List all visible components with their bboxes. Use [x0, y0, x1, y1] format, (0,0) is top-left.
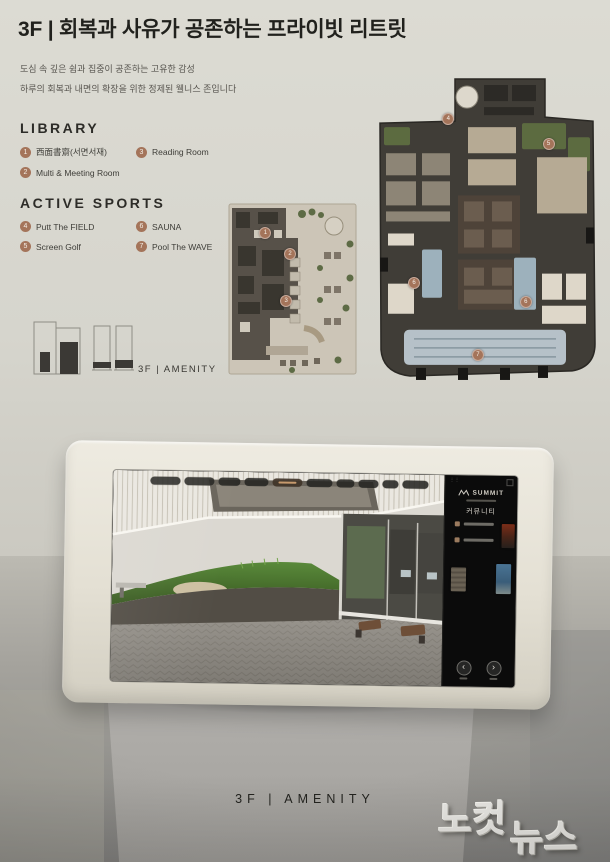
legend-label: Putt The FIELD [36, 222, 94, 232]
legend-item: 1西面書齋(서면서재) [20, 146, 132, 158]
screen-nav-pill[interactable] [402, 480, 428, 488]
plan-marker: 3 [280, 295, 292, 307]
legend-item: 4Putt The FIELD [20, 221, 132, 232]
legend-number-badge: 5 [20, 241, 31, 252]
photo-of-showroom-board: 3F | 회복과 사유가 공존하는 프라이빗 리트릿 도심 속 깊은 쉼과 집중… [0, 0, 610, 862]
legend-label: Screen Golf [36, 242, 81, 252]
panel-menu-title: 커뮤니티 [445, 506, 517, 517]
panel-list-item[interactable] [455, 521, 494, 527]
legend-number-badge: 3 [136, 147, 147, 158]
screen-nav-pill[interactable] [150, 477, 180, 485]
amenity-legend: LIBRARY1西面書齋(서면서재)3Reading Room2Multi & … [20, 120, 235, 269]
bullet-icon [455, 521, 460, 526]
legend-item: 6SAUNA [136, 221, 235, 232]
screen-nav-pill[interactable] [272, 478, 302, 486]
interior-render-putting-green[interactable] [110, 470, 445, 686]
item-text-bar [464, 539, 494, 542]
subtitle-line-1: 도심 속 깊은 쉼과 집중이 공존하는 고유한 감성 [20, 60, 236, 80]
legend-label: Pool The WAVE [152, 242, 212, 252]
kiosk-pedestal [100, 698, 482, 862]
legend-item: 2Multi & Meeting Room [20, 167, 132, 178]
legend-label: Multi & Meeting Room [36, 168, 120, 178]
next-button[interactable]: › [486, 661, 501, 676]
plan-marker: 6 [520, 296, 532, 308]
massing-label: 3F | AMENITY [138, 364, 217, 375]
summit-logo-icon [458, 488, 469, 496]
floorplan-library: 123 [228, 200, 358, 378]
legend-label: SAUNA [152, 222, 181, 232]
board-title: 3F | 회복과 사유가 공존하는 프라이빗 리트릿 [18, 13, 407, 43]
floorplan-active-sports: 45667 [372, 77, 600, 392]
legend-number-badge: 7 [136, 241, 147, 252]
brand-name: SUMMIT [472, 489, 504, 496]
legend-number-badge: 4 [20, 221, 31, 232]
legend-item: 3Reading Room [136, 146, 235, 158]
legend-label: 西面書齋(서면서재) [36, 146, 107, 158]
legend-section: LIBRARY1西面書齋(서면서재)3Reading Room2Multi & … [20, 120, 235, 178]
next-caption-bar [489, 678, 497, 680]
plan-marker: 7 [472, 349, 484, 361]
legend-number-badge: 6 [136, 221, 147, 232]
item-text-bar [464, 523, 494, 526]
screen-side-panel: ⋮⋮ SUMMIT 커뮤니티 [441, 475, 517, 687]
brand-tagline [445, 499, 517, 502]
screen-nav-pill[interactable] [218, 478, 240, 486]
screen-nav-pill[interactable] [336, 479, 354, 487]
render-scene [110, 470, 445, 686]
screen-nav-pill[interactable] [244, 478, 268, 486]
screen-nav-pill[interactable] [306, 479, 332, 487]
plan-marker: 4 [442, 113, 454, 125]
subtitle-line-2: 하루의 회복과 내면의 확장을 위한 정제된 웰니스 존입니다 [20, 80, 236, 100]
plan-marker: 6 [408, 277, 420, 289]
board-subtitle: 도심 속 깊은 쉼과 집중이 공존하는 고유한 감성 하루의 회복과 내면의 확… [20, 60, 236, 100]
plan-marker: 1 [259, 227, 271, 239]
thumbnail-floorplan[interactable] [451, 567, 466, 591]
legend-heading: LIBRARY [20, 120, 235, 136]
floorplan-markers: 123 [228, 200, 358, 378]
kiosk-screen[interactable]: ⋮⋮ SUMMIT 커뮤니티 [110, 470, 517, 687]
legend-label: Reading Room [152, 147, 209, 157]
touchscreen-kiosk: ⋮⋮ SUMMIT 커뮤니티 [62, 440, 554, 710]
plan-marker: 5 [543, 138, 555, 150]
prev-caption-bar [459, 677, 467, 679]
thumbnail-render[interactable] [501, 524, 514, 548]
bullet-icon [455, 537, 460, 542]
prev-button[interactable]: ‹ [456, 660, 471, 675]
legend-heading: ACTIVE SPORTS [20, 195, 235, 211]
panel-menu-icon[interactable] [506, 479, 513, 486]
plan-marker: 2 [284, 248, 296, 260]
legend-number-badge: 2 [20, 167, 31, 178]
floorplan-markers: 45667 [372, 77, 600, 392]
panel-dots-icon[interactable]: ⋮⋮ [449, 478, 454, 483]
legend-item: 7Pool The WAVE [136, 241, 235, 252]
thumbnail-map[interactable] [496, 564, 511, 594]
legend-item: 5Screen Golf [20, 241, 132, 252]
panel-list-item[interactable] [455, 537, 494, 543]
pedestal-label: 3F | AMENITY [0, 792, 610, 806]
legend-number-badge: 1 [20, 147, 31, 158]
next-button-group: › [486, 661, 501, 680]
prev-button-group: ‹ [456, 660, 471, 679]
screen-nav-pill[interactable] [382, 480, 398, 488]
legend-section: ACTIVE SPORTS4Putt The FIELD6SAUNA5Scree… [20, 195, 235, 252]
screen-nav-pill[interactable] [184, 477, 214, 485]
building-massing-diagram: 3F | AMENITY [16, 312, 226, 382]
screen-nav-pill[interactable] [358, 480, 378, 488]
